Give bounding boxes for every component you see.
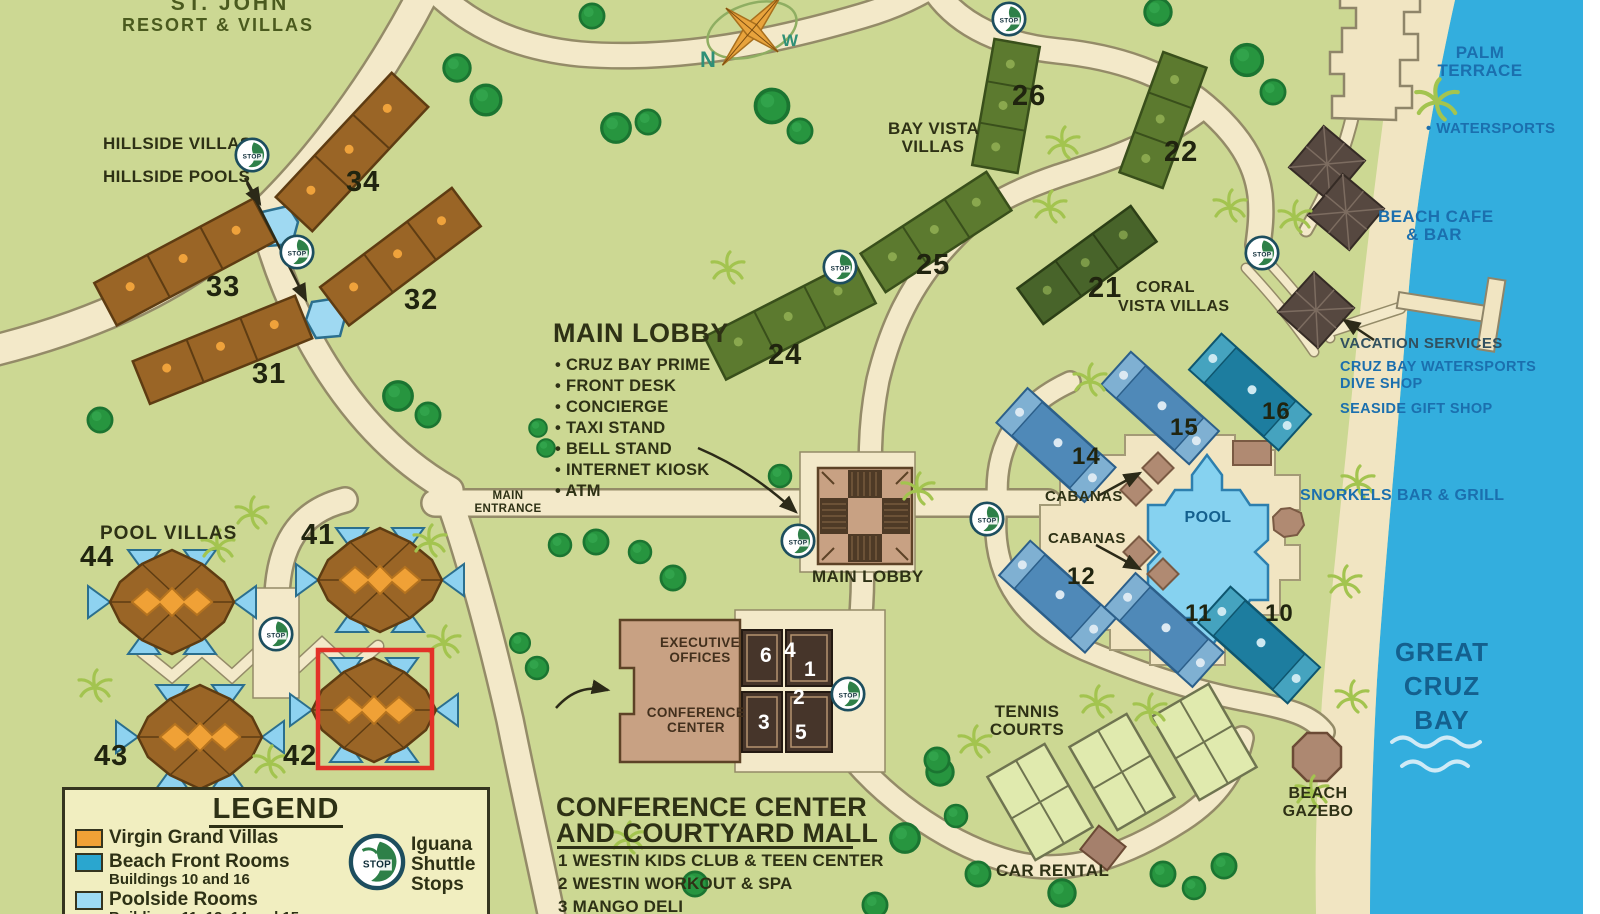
stop-text: STOP [977, 518, 998, 525]
shuttle-stop-bay-vista-mid[interactable]: STOP [822, 249, 858, 285]
main-lobby-building[interactable] [818, 468, 912, 564]
courtyard-heading-underline [557, 846, 853, 849]
shuttle-stop-conference[interactable]: STOP [830, 676, 866, 712]
building-44-label: 44 [80, 541, 114, 574]
great-cruz-bay-label-line1: GREAT [1388, 638, 1496, 667]
main-lobby-label: MAIN LOBBY [812, 568, 916, 587]
courtyard-item: 3 MANGO DELI [558, 897, 683, 914]
bay-vista-label-line1: BAY VISTA [888, 120, 978, 139]
service-item: BELL STAND [555, 439, 729, 460]
shuttle-stop-beach-cafe[interactable]: STOP [1244, 235, 1280, 271]
service-item: CONCIERGE [555, 397, 729, 418]
room-2-label: 2 [793, 686, 805, 710]
shuttle-stop-hillside-upper[interactable]: STOP [234, 137, 270, 173]
shuttle-stop-pool-villas[interactable]: STOP [258, 616, 294, 652]
bay-vista-label-line2: VILLAS [888, 138, 978, 157]
building-10-label: 10 [1265, 600, 1294, 628]
stop-text: STOP [266, 633, 287, 640]
building-15-label: 15 [1170, 414, 1199, 442]
service-item: CRUZ BAY PRIME [555, 355, 729, 376]
stop-text: STOP [999, 18, 1020, 25]
building-41-label: 41 [301, 519, 335, 552]
snorkels-bar-structure[interactable] [1273, 508, 1304, 537]
stop-text: STOP [788, 540, 809, 547]
coral-vista-label-line1: CORAL [1136, 279, 1195, 297]
cabanas-upper-label: CABANAS [1045, 489, 1123, 506]
resort-title-line2: RESORT & VILLAS [118, 16, 318, 36]
shuttle-legend-line3: Stops [411, 874, 464, 896]
shuttle-legend-line2: Shuttle [411, 854, 475, 876]
compass-west-label: W [782, 32, 798, 51]
pool-label: POOL [1175, 509, 1241, 527]
beach-cafe-label-line1: BEACH CAFE [1378, 208, 1490, 227]
main-lobby-services-title: MAIN LOBBY [553, 318, 729, 349]
courtyard-item: 1 WESTIN KIDS CLUB & TEEN CENTER [558, 851, 884, 871]
beach-gazebo-structure[interactable] [1293, 733, 1341, 781]
compass-north-label: N [700, 48, 716, 72]
conference-center-label-line2: CENTER [640, 721, 752, 736]
main-entrance-label-line1: MAIN [468, 490, 548, 503]
palm-terrace-label-line1: PALM [1430, 44, 1530, 63]
hillside-villas-label: HILLSIDE VILLAS [103, 135, 252, 154]
cabanas-lower-label: CABANAS [1048, 531, 1126, 548]
executive-offices-label-line2: OFFICES [648, 651, 752, 666]
shuttle-stop-lobby-east[interactable]: STOP [969, 501, 1005, 537]
shuttle-stop-bay-vista-top[interactable]: STOP [991, 1, 1027, 37]
main-entrance-label-line2: ENTRANCE [468, 503, 548, 516]
building-32-label: 32 [404, 284, 438, 317]
legend-item-sublabel: Buildings 11, 12, 14 and 15 [109, 909, 299, 914]
coral-vista-label-line2: VISTA VILLAS [1118, 298, 1229, 316]
service-item: INTERNET KIOSK [555, 460, 729, 481]
shuttle-stop-lobby-west[interactable]: STOP [780, 523, 816, 559]
virgin-grand-swatch [75, 829, 103, 848]
shuttle-legend-line1: Iguana [411, 834, 472, 856]
building-31-label: 31 [252, 358, 286, 391]
stop-text: STOP [287, 251, 308, 258]
legend-item-label: Poolside Rooms [109, 889, 258, 911]
dive-shop-label-line1: CRUZ BAY WATERSPORTS [1340, 360, 1536, 376]
stop-text: STOP [1252, 252, 1273, 259]
building-24-label: 24 [768, 339, 802, 372]
building-43-label: 43 [94, 740, 128, 773]
shuttle-stop-hillside-lower[interactable]: STOP [279, 234, 315, 270]
building-25-label: 25 [916, 249, 950, 282]
beach-front-swatch [75, 853, 103, 872]
courtyard-heading-line2: AND COURTYARD MALL [556, 818, 878, 849]
hillside-pools-label: HILLSIDE POOLS [103, 168, 250, 187]
building-14-label: 14 [1072, 443, 1101, 471]
main-lobby-services: MAIN LOBBY CRUZ BAY PRIME FRONT DESK CON… [553, 318, 729, 502]
service-item: FRONT DESK [555, 376, 729, 397]
room-6-label: 6 [760, 644, 772, 668]
room-4-label: 4 [784, 639, 796, 663]
executive-offices-label-line1: EXECUTIVE [648, 636, 752, 651]
building-34-label: 34 [346, 166, 380, 199]
legend-shuttle-stop-icon: STOP [348, 833, 406, 891]
vacation-services-label: VACATION SERVICES [1340, 336, 1503, 353]
room-3-label: 3 [758, 711, 770, 735]
tennis-courts-label-line1: TENNIS [988, 703, 1066, 722]
stop-text: STOP [242, 154, 263, 161]
service-item: ATM [555, 481, 729, 502]
great-cruz-bay-label-line3: BAY [1388, 706, 1496, 735]
poolside-swatch [75, 891, 103, 910]
legend: LEGEND Virgin Grand Villas Beach Front R… [62, 787, 490, 914]
car-rental-label: CAR RENTAL [996, 862, 1109, 881]
service-item: TAXI STAND [555, 418, 729, 439]
beach-gazebo-label-line1: BEACH [1272, 785, 1364, 803]
stop-text: STOP [838, 693, 859, 700]
room-1-label: 1 [804, 658, 816, 682]
conference-center-label-line1: CONFERENCE [640, 706, 752, 721]
legend-item-label: Virgin Grand Villas [109, 827, 278, 849]
building-12-label: 12 [1067, 563, 1096, 591]
legend-title: LEGEND [65, 793, 487, 826]
building-11-label: 11 [1185, 600, 1212, 628]
room-5-label: 5 [795, 721, 807, 745]
pool-building[interactable] [1233, 441, 1271, 465]
page-edge [1583, 0, 1600, 914]
building-33-label: 33 [206, 271, 240, 304]
building-22-label: 22 [1164, 136, 1198, 169]
tennis-courts-label-line2: COURTS [988, 721, 1066, 740]
legend-item-sublabel: Buildings 10 and 16 [109, 871, 250, 888]
beach-cafe-label-line2: & BAR [1378, 226, 1490, 245]
resort-title-line1: ST. JOHN [150, 0, 310, 15]
main-lobby-services-list: CRUZ BAY PRIME FRONT DESK CONCIERGE TAXI… [555, 355, 729, 502]
legend-item-label: Beach Front Rooms [109, 851, 290, 873]
pool-villas-label: POOL VILLAS [100, 524, 237, 545]
great-cruz-bay-label-line2: CRUZ [1388, 672, 1496, 701]
dive-shop-label-line2: DIVE SHOP [1340, 377, 1423, 393]
building-26-label: 26 [1012, 80, 1046, 113]
palm-terrace-label-line2: TERRACE [1430, 62, 1530, 81]
snorkels-bar-label: SNORKELS BAR & GRILL [1300, 487, 1504, 505]
stop-text: STOP [830, 266, 851, 273]
beach-gazebo-label-line2: GAZEBO [1272, 803, 1364, 821]
courtyard-item: 2 WESTIN WORKOUT & SPA [558, 874, 793, 894]
stop-text: STOP [362, 860, 392, 871]
resort-map: ST. JOHN RESORT & VILLAS N W HILLSIDE VI… [0, 0, 1600, 914]
building-42-label: 42 [283, 740, 317, 773]
watersports-label: • WATERSPORTS [1426, 121, 1555, 138]
gift-shop-label: SEASIDE GIFT SHOP [1340, 402, 1493, 418]
building-16-label: 16 [1262, 398, 1291, 426]
